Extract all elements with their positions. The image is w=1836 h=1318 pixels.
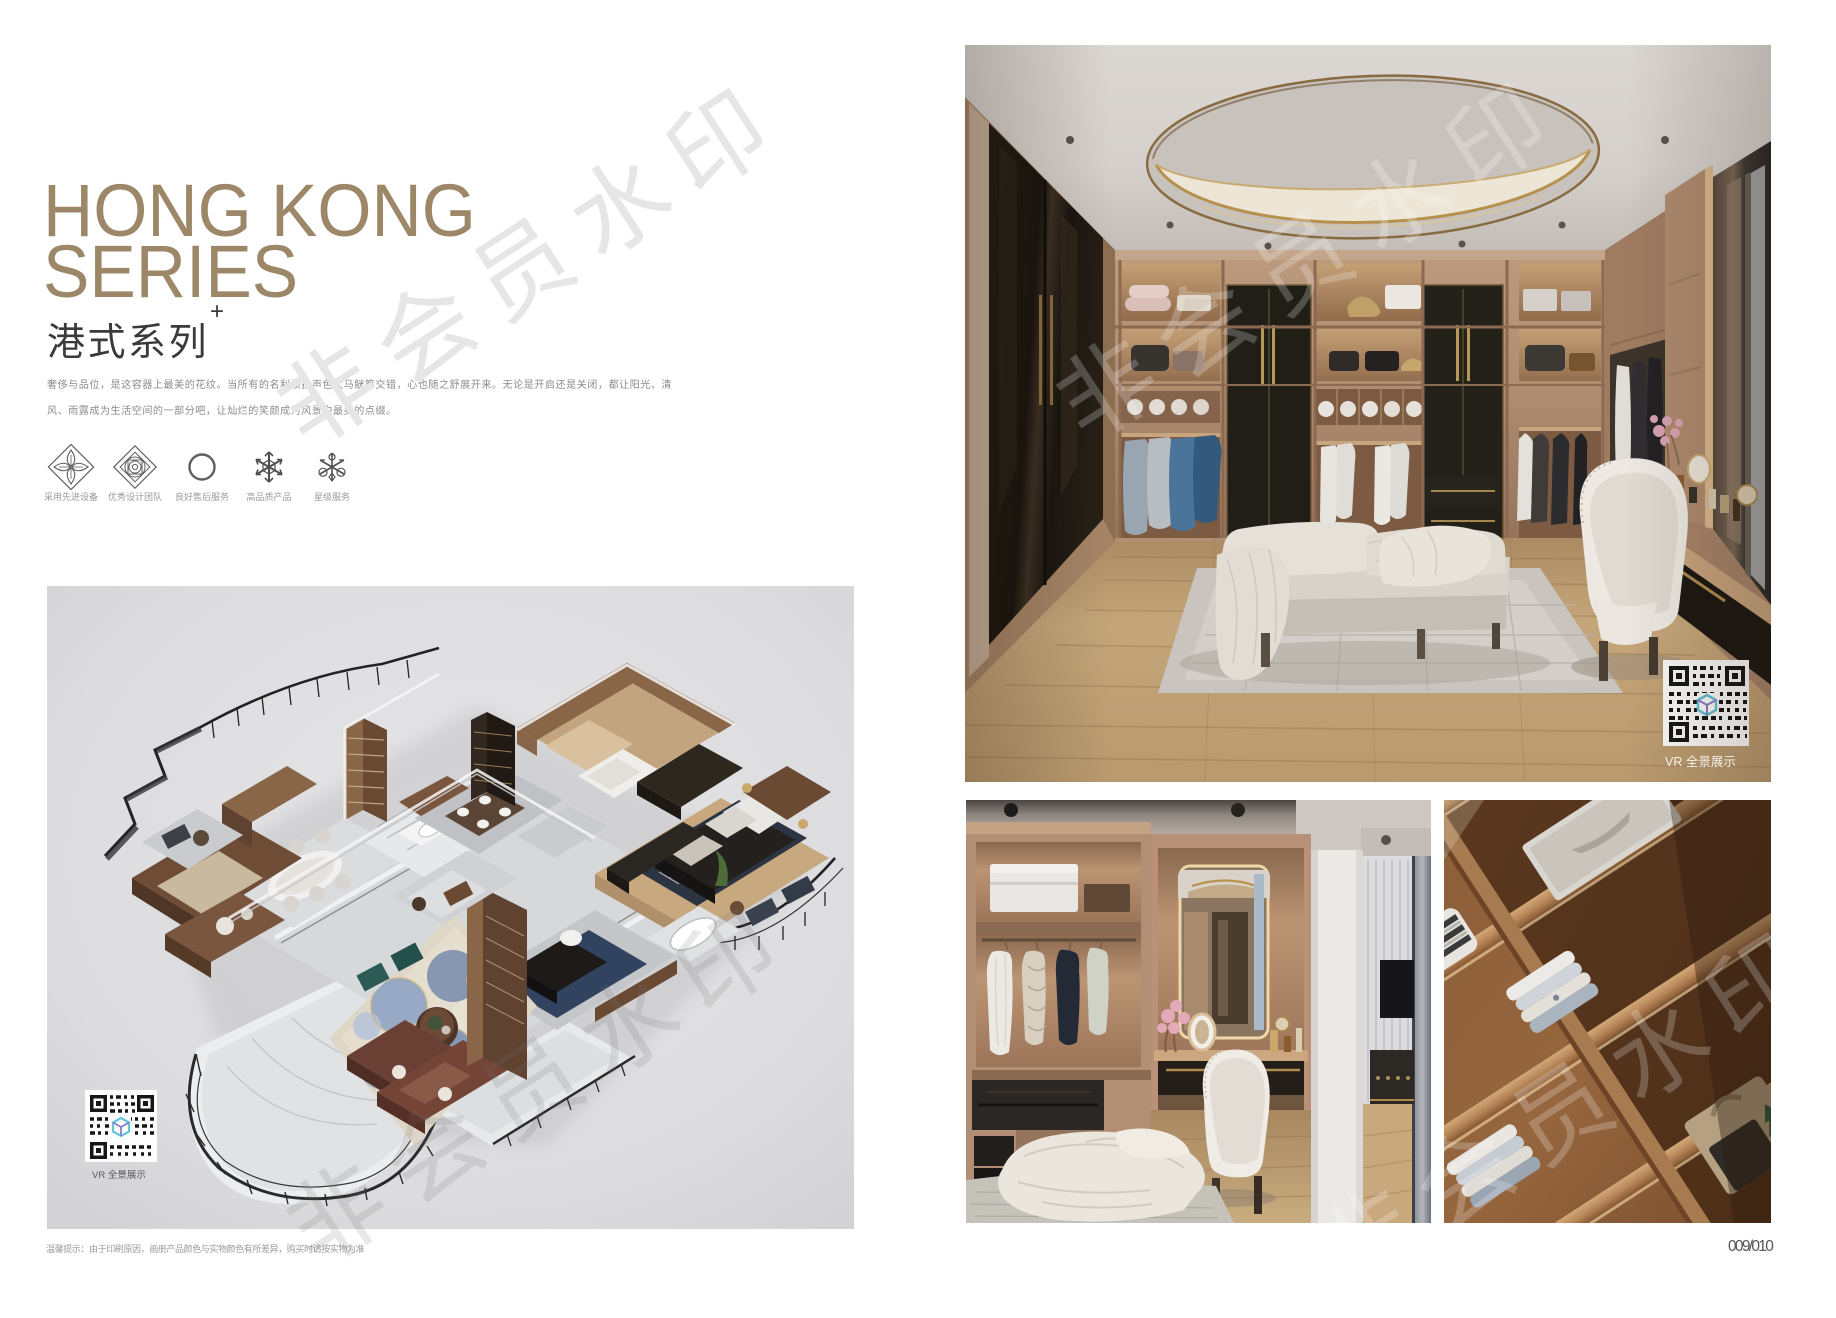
svg-text:VR 全景展示: VR 全景展示 <box>1665 754 1736 769</box>
svg-text:VR 全景展示: VR 全景展示 <box>92 1169 146 1181</box>
